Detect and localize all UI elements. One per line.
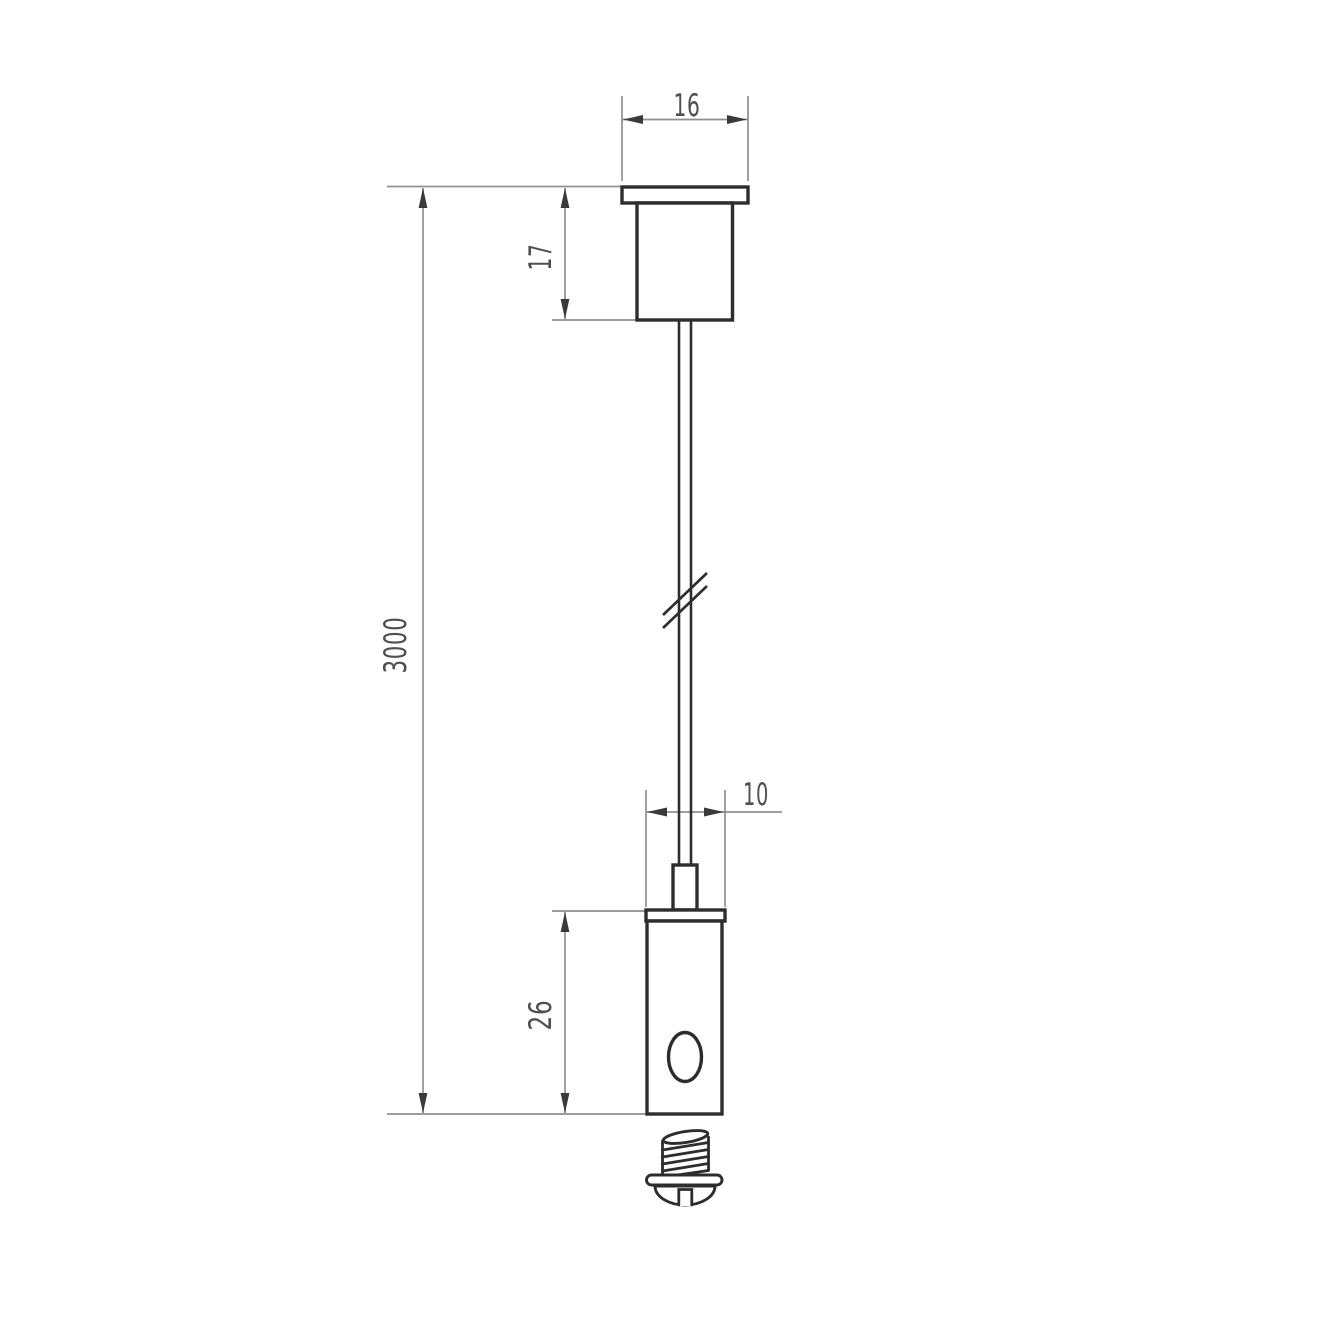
- wire-ferrule: [673, 865, 697, 910]
- arrowhead-down-icon: [419, 1093, 428, 1113]
- part-layer: [622, 187, 748, 1206]
- dim-label-wire-length: 3000: [378, 617, 414, 674]
- dim-label-canopy-width: 16: [674, 88, 701, 124]
- gripper-side-hole: [669, 1033, 702, 1082]
- arrowhead-right-icon: [727, 115, 747, 124]
- arrowhead-up-icon: [561, 188, 570, 208]
- arrowhead-right-icon: [704, 808, 724, 817]
- suspension-kit-technical-drawing: 16 17 3000 10 26: [0, 0, 1331, 1331]
- wire-break-icon: [663, 573, 707, 628]
- drawing-canvas: 16 17 3000 10 26: [0, 0, 1331, 1331]
- screw-washer-flange: [647, 1175, 723, 1185]
- dim-label-gripper-height: 26: [523, 1000, 559, 1031]
- gripper-body: [647, 921, 722, 1114]
- arrowhead-down-icon: [561, 1093, 570, 1113]
- arrowhead-left-icon: [647, 808, 667, 817]
- arrowhead-down-icon: [561, 299, 570, 319]
- arrowhead-up-icon: [419, 188, 428, 208]
- dim-label-canopy-height: 17: [523, 244, 559, 271]
- arrowhead-up-icon: [561, 912, 570, 932]
- arrowhead-left-icon: [623, 115, 643, 124]
- canopy-body: [637, 203, 733, 320]
- fixing-screw: [647, 1128, 723, 1206]
- dim-label-gripper-width: 10: [743, 777, 769, 813]
- screw-thread-turns: [663, 1143, 709, 1178]
- canopy-flange: [622, 187, 748, 203]
